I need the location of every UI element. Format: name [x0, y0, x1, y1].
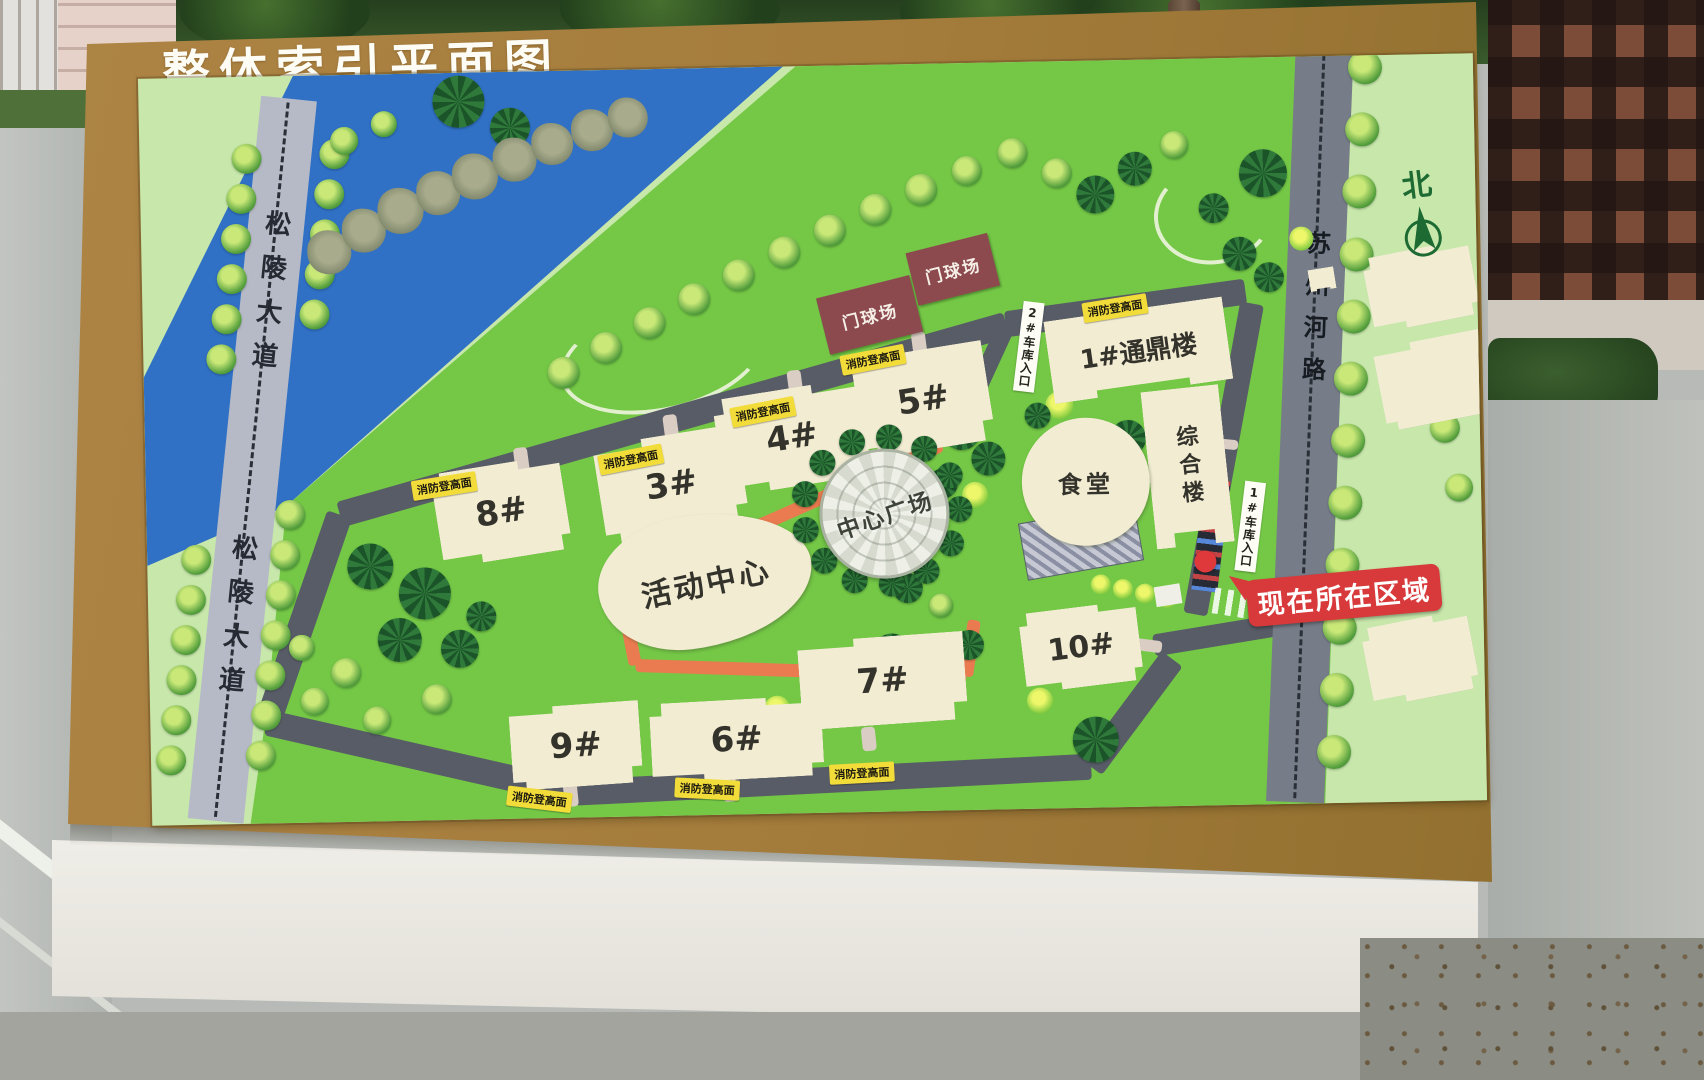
tree-marker: [607, 97, 648, 138]
tree-marker: [451, 153, 498, 200]
building-path-stub: [861, 726, 877, 751]
road-name-label: 苏州河路: [1293, 230, 1335, 399]
tree-marker: [492, 137, 537, 182]
building-综合楼: 综合楼: [1140, 384, 1234, 549]
building-label: 8#: [472, 488, 530, 536]
building-label: 活动中心: [636, 545, 774, 616]
building-label: 综合楼: [1167, 423, 1208, 510]
street-tree: [1336, 299, 1371, 334]
street-tree: [181, 545, 212, 576]
north-arrow-icon: [1397, 202, 1447, 261]
building-label: 5#: [894, 376, 952, 424]
building-8: 8#: [430, 454, 573, 568]
tree-marker: [531, 123, 574, 166]
guard-booth: [1154, 583, 1183, 607]
building-label: 6#: [710, 718, 764, 761]
street-tree: [161, 705, 192, 736]
street-tree: [156, 745, 187, 776]
ground-bottom-right: [1360, 938, 1704, 1080]
building-label: 10#: [1046, 625, 1117, 668]
street-tree: [176, 585, 207, 616]
road-name-label: 松陵大道: [208, 532, 263, 711]
fire-access-label: 消防登高面: [674, 777, 740, 800]
neighbor-building: [1307, 266, 1336, 292]
building-10: 10#: [1018, 600, 1145, 694]
street-tree: [216, 264, 247, 295]
street-tree: [171, 625, 202, 656]
street-tree: [166, 665, 197, 696]
street-tree: [1320, 672, 1355, 707]
building-label: 1#通鼎楼: [1077, 324, 1199, 377]
building-6: 6#: [649, 695, 825, 784]
brick-building: [1488, 0, 1704, 335]
north-label: 北: [1399, 159, 1434, 206]
site-map: 松陵大道松陵大道苏州河路8#3#4#5#9#6#7#10#1#通鼎楼综合楼食堂活…: [138, 53, 1487, 825]
central-plaza: 中心广场: [818, 447, 950, 579]
street-tree: [1339, 237, 1374, 272]
street-tree: [211, 304, 242, 335]
building-label: 7#: [855, 659, 910, 703]
fire-access-label: 消防登高面: [829, 761, 895, 784]
signboard-photo: 整体索引平面图 松陵大道松陵大道苏州河路8#3#4#5#9#6#7#10#1#通…: [0, 0, 1704, 1080]
street-tree: [265, 580, 296, 611]
building-label: 9#: [548, 724, 603, 768]
building-label: 3#: [642, 461, 700, 509]
street-tree: [251, 700, 282, 731]
